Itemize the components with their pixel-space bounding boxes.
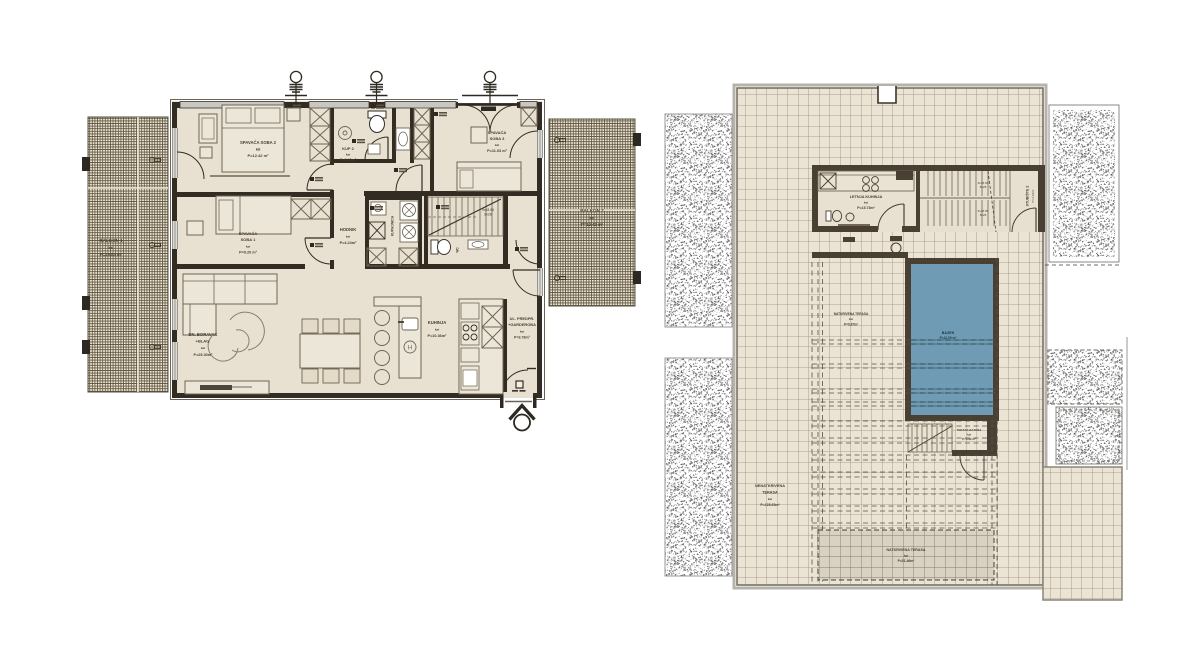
svg-text:SPAVAĆA SOBA 2: SPAVAĆA SOBA 2: [240, 140, 277, 145]
svg-text:KUP 2: KUP 2: [342, 146, 354, 151]
svg-text:kat: kat: [967, 433, 971, 437]
svg-text:NENATKRIVENA: NENATKRIVENA: [755, 484, 785, 488]
svg-text:8x28: 8x28: [980, 185, 987, 189]
svg-text:P=9.20 m²: P=9.20 m²: [239, 251, 258, 255]
svg-text:+BLAG.: +BLAG.: [196, 339, 211, 344]
svg-text:kat: kat: [435, 328, 439, 332]
svg-text:P=12.42 m²: P=12.42 m²: [581, 222, 604, 227]
svg-text:SPAVAĆA: SPAVAĆA: [488, 130, 507, 135]
svg-text:P=18.83 m²: P=18.83 m²: [100, 252, 123, 257]
svg-text:P=3.78m²: P=3.78m²: [514, 336, 531, 340]
svg-text:BAZEN: BAZEN: [942, 331, 955, 335]
svg-text:HODNIK: HODNIK: [340, 227, 357, 232]
svg-text:SOBA 1: SOBA 1: [241, 237, 257, 242]
svg-text:WC: WC: [456, 247, 460, 253]
svg-text:P=51.46m²: P=51.46m²: [898, 559, 916, 563]
svg-text:TERASA BAZENA: TERASA BAZENA: [957, 428, 983, 432]
svg-text:kat: kat: [109, 246, 115, 250]
svg-text:P=12.42 m²: P=12.42 m²: [247, 153, 269, 158]
svg-text:P=4.19m²: P=4.19m²: [1031, 189, 1035, 202]
svg-text:kat: kat: [346, 234, 350, 238]
svg-text:kat: kat: [520, 329, 524, 333]
svg-text:8x28: 8x28: [484, 213, 491, 217]
svg-text:P=9.87m²: P=9.87m²: [844, 322, 858, 326]
svg-text:P=15.73m²: P=15.73m²: [857, 206, 875, 210]
svg-text:kat: kat: [864, 201, 868, 205]
svg-text:8x28: 8x28: [980, 213, 987, 217]
svg-text:kat: kat: [849, 317, 853, 321]
svg-text:BALKON 2: BALKON 2: [580, 208, 604, 213]
svg-text:KUHINJA: KUHINJA: [428, 320, 447, 325]
svg-text:TERASA: TERASA: [762, 490, 778, 494]
svg-text:P=128.63m²: P=128.63m²: [760, 503, 780, 507]
svg-text:kat: kat: [590, 216, 596, 220]
svg-text:H: H: [408, 346, 412, 352]
svg-text:P=25.30m²: P=25.30m²: [194, 353, 214, 357]
svg-text:+GARDEROBA: +GARDEROBA: [508, 322, 536, 327]
svg-text:9x18.66: 9x18.66: [482, 208, 494, 212]
svg-text:kat: kat: [346, 152, 350, 156]
svg-text:kat: kat: [904, 554, 908, 558]
svg-text:BALKON 1: BALKON 1: [99, 238, 123, 243]
svg-text:P=2.41m²: P=2.41m²: [340, 158, 357, 162]
svg-text:P=11.03 m²: P=11.03 m²: [487, 149, 507, 153]
svg-text:DN. BORAVAK: DN. BORAVAK: [189, 332, 218, 337]
svg-text:SOBA 3: SOBA 3: [490, 136, 506, 141]
svg-text:NATKRIVENA TERASA: NATKRIVENA TERASA: [834, 312, 869, 316]
svg-text:STUBIŠTE 2: STUBIŠTE 2: [1025, 186, 1030, 207]
svg-text:kat: kat: [201, 346, 205, 350]
svg-text:LETNJA KUHINJA: LETNJA KUHINJA: [850, 195, 883, 199]
svg-text:kat: kat: [495, 143, 499, 147]
svg-text:KUPAONICA: KUPAONICA: [391, 215, 395, 236]
svg-text:P=10.36m²: P=10.36m²: [428, 334, 448, 338]
svg-text:UL. PREDPR.: UL. PREDPR.: [510, 316, 535, 321]
svg-text:SPAVAĆA: SPAVAĆA: [239, 231, 258, 236]
svg-text:P=4.24m²: P=4.24m²: [340, 241, 358, 245]
svg-text:kat: kat: [768, 497, 772, 501]
svg-text:kat: kat: [246, 244, 250, 248]
svg-text:P=12.00 m²: P=12.00 m²: [940, 336, 957, 340]
svg-text:NATKRIVENA TERASA: NATKRIVENA TERASA: [887, 548, 926, 552]
